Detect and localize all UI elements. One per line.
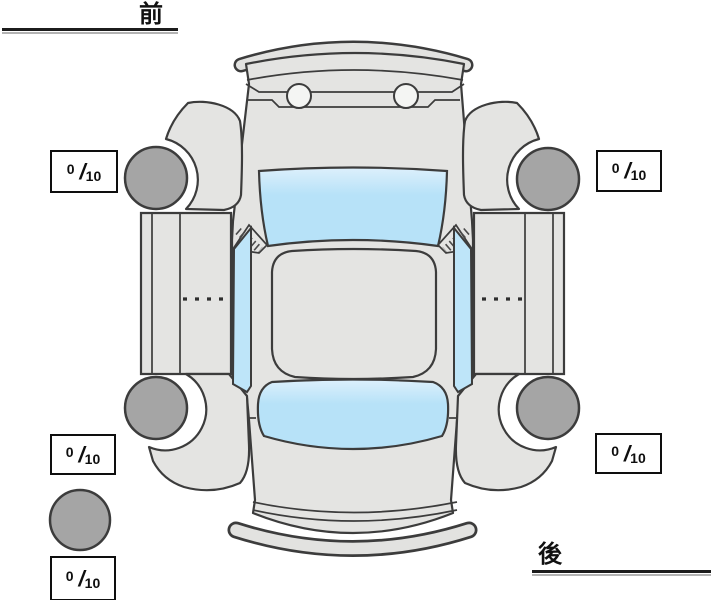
hood-left-circle	[287, 84, 311, 108]
roof	[272, 249, 436, 379]
front-label-underline-shadow	[2, 32, 178, 34]
front-label-underline	[2, 28, 178, 31]
wheel-rear-right	[517, 377, 579, 439]
tread-score-rear-left: 0/10	[50, 434, 116, 475]
wheel-front-right	[517, 148, 579, 210]
front-label: 前	[139, 2, 163, 26]
score-max: 10	[630, 450, 646, 466]
score-value: 0	[67, 161, 75, 177]
tread-score-front-left: 0/10	[50, 150, 118, 193]
wheel-rear-left	[125, 377, 187, 439]
tread-score-spare: 0/10	[50, 556, 116, 600]
car-top-view-svg	[0, 0, 711, 600]
door-panels	[141, 213, 231, 374]
score-value: 0	[66, 568, 74, 584]
tread-score-front-right: 0/10	[596, 150, 662, 192]
rear-label-underline-shadow	[532, 574, 711, 576]
wheel-spare	[50, 490, 110, 550]
rear-label: 後	[538, 542, 562, 566]
hood-right-circle	[394, 84, 418, 108]
score-max: 10	[631, 167, 647, 183]
score-max: 10	[85, 451, 101, 467]
score-value: 0	[611, 443, 619, 459]
score-max: 10	[86, 168, 102, 184]
score-max: 10	[85, 575, 101, 591]
vehicle-condition-diagram: 前 後 0/10 0/10 0/10 0/10 0/10	[0, 0, 711, 600]
side-window	[233, 228, 251, 392]
score-value: 0	[66, 444, 74, 460]
windshield	[259, 168, 447, 247]
wheel-front-left	[125, 147, 187, 209]
score-value: 0	[612, 160, 620, 176]
rear-window	[258, 380, 448, 450]
rear-label-underline	[532, 570, 711, 573]
tread-score-rear-right: 0/10	[595, 433, 662, 474]
